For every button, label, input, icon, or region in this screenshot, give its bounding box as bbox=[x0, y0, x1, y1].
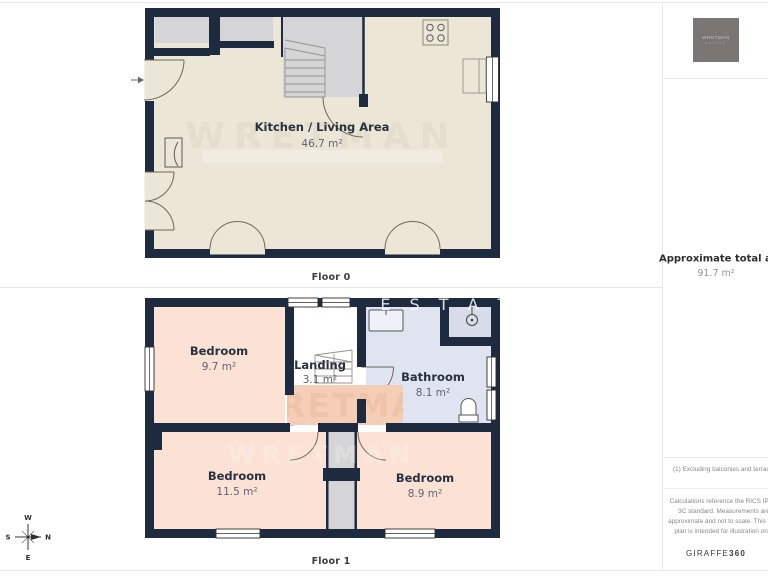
north-arrow-icon bbox=[31, 534, 41, 540]
watermark-faint-floor1: WRETMAN bbox=[228, 440, 416, 469]
room-label-kitchen: Kitchen / Living Area bbox=[255, 120, 390, 134]
sidebar-divider-1 bbox=[663, 78, 768, 79]
giraffe360-brand: GIRAFFE360 bbox=[663, 549, 768, 558]
compass-east-label: E bbox=[26, 554, 31, 562]
sidebar-divider-3 bbox=[663, 488, 768, 489]
floorplan-page: WRETMAN bbox=[0, 0, 768, 576]
room-label-bathroom: Bathroom bbox=[401, 370, 465, 384]
logo-line1: WRETMAN bbox=[702, 35, 729, 40]
compass-star bbox=[15, 524, 41, 550]
room-area-landing: 3.1 m² bbox=[303, 374, 337, 386]
floor0-caption: Floor 0 bbox=[0, 272, 662, 283]
wall-stub bbox=[154, 48, 210, 56]
toilet-icon bbox=[459, 399, 478, 423]
room-area-kitchen: 46.7 m² bbox=[301, 138, 342, 150]
entry-arrow-icon bbox=[138, 77, 144, 84]
agency-logo-box: WRETMAN ESTATE bbox=[663, 2, 768, 78]
floor-1-plan: WRETMAN bbox=[128, 293, 510, 551]
info-sidebar: WRETMAN ESTATE Approximate total area(1)… bbox=[662, 2, 768, 570]
compass-north-label: N bbox=[45, 534, 51, 542]
total-area-value: 91.7 m² bbox=[663, 268, 768, 279]
logo-line2: ESTATE bbox=[706, 41, 727, 45]
room-label-bedroom1: Bedroom bbox=[190, 344, 248, 358]
agency-logo: WRETMAN ESTATE bbox=[693, 18, 739, 62]
room-label-landing: Landing bbox=[294, 358, 346, 372]
room-area-bathroom: 8.1 m² bbox=[416, 387, 450, 399]
compass-south-label: S bbox=[5, 534, 10, 542]
compass-west-label: W bbox=[24, 514, 32, 522]
watermark-estate: E S T A T E bbox=[380, 295, 510, 314]
window-right bbox=[487, 57, 499, 102]
floor-0-plan: WRETMAN bbox=[128, 0, 510, 262]
room-area-bedroom2: 11.5 m² bbox=[216, 486, 257, 498]
floor1-caption: Floor 1 bbox=[0, 556, 662, 567]
floors-divider bbox=[0, 287, 662, 288]
total-area-label: Approximate total area(1) bbox=[659, 252, 768, 264]
area-footnote: (1) Excluding balconies and terraces bbox=[673, 466, 768, 473]
compass-rose: W N E S bbox=[2, 508, 58, 568]
bottom-border bbox=[0, 570, 768, 571]
room-area-bedroom1: 9.7 m² bbox=[202, 361, 236, 373]
sidebar-divider-2 bbox=[663, 457, 768, 458]
room-label-bedroom2: Bedroom bbox=[208, 469, 266, 483]
room-area-bedroom3: 8.9 m² bbox=[408, 488, 442, 500]
room-label-bedroom3: Bedroom bbox=[396, 471, 454, 485]
disclaimer-text: Calculations reference the RICS IPMS 3C … bbox=[667, 497, 768, 537]
